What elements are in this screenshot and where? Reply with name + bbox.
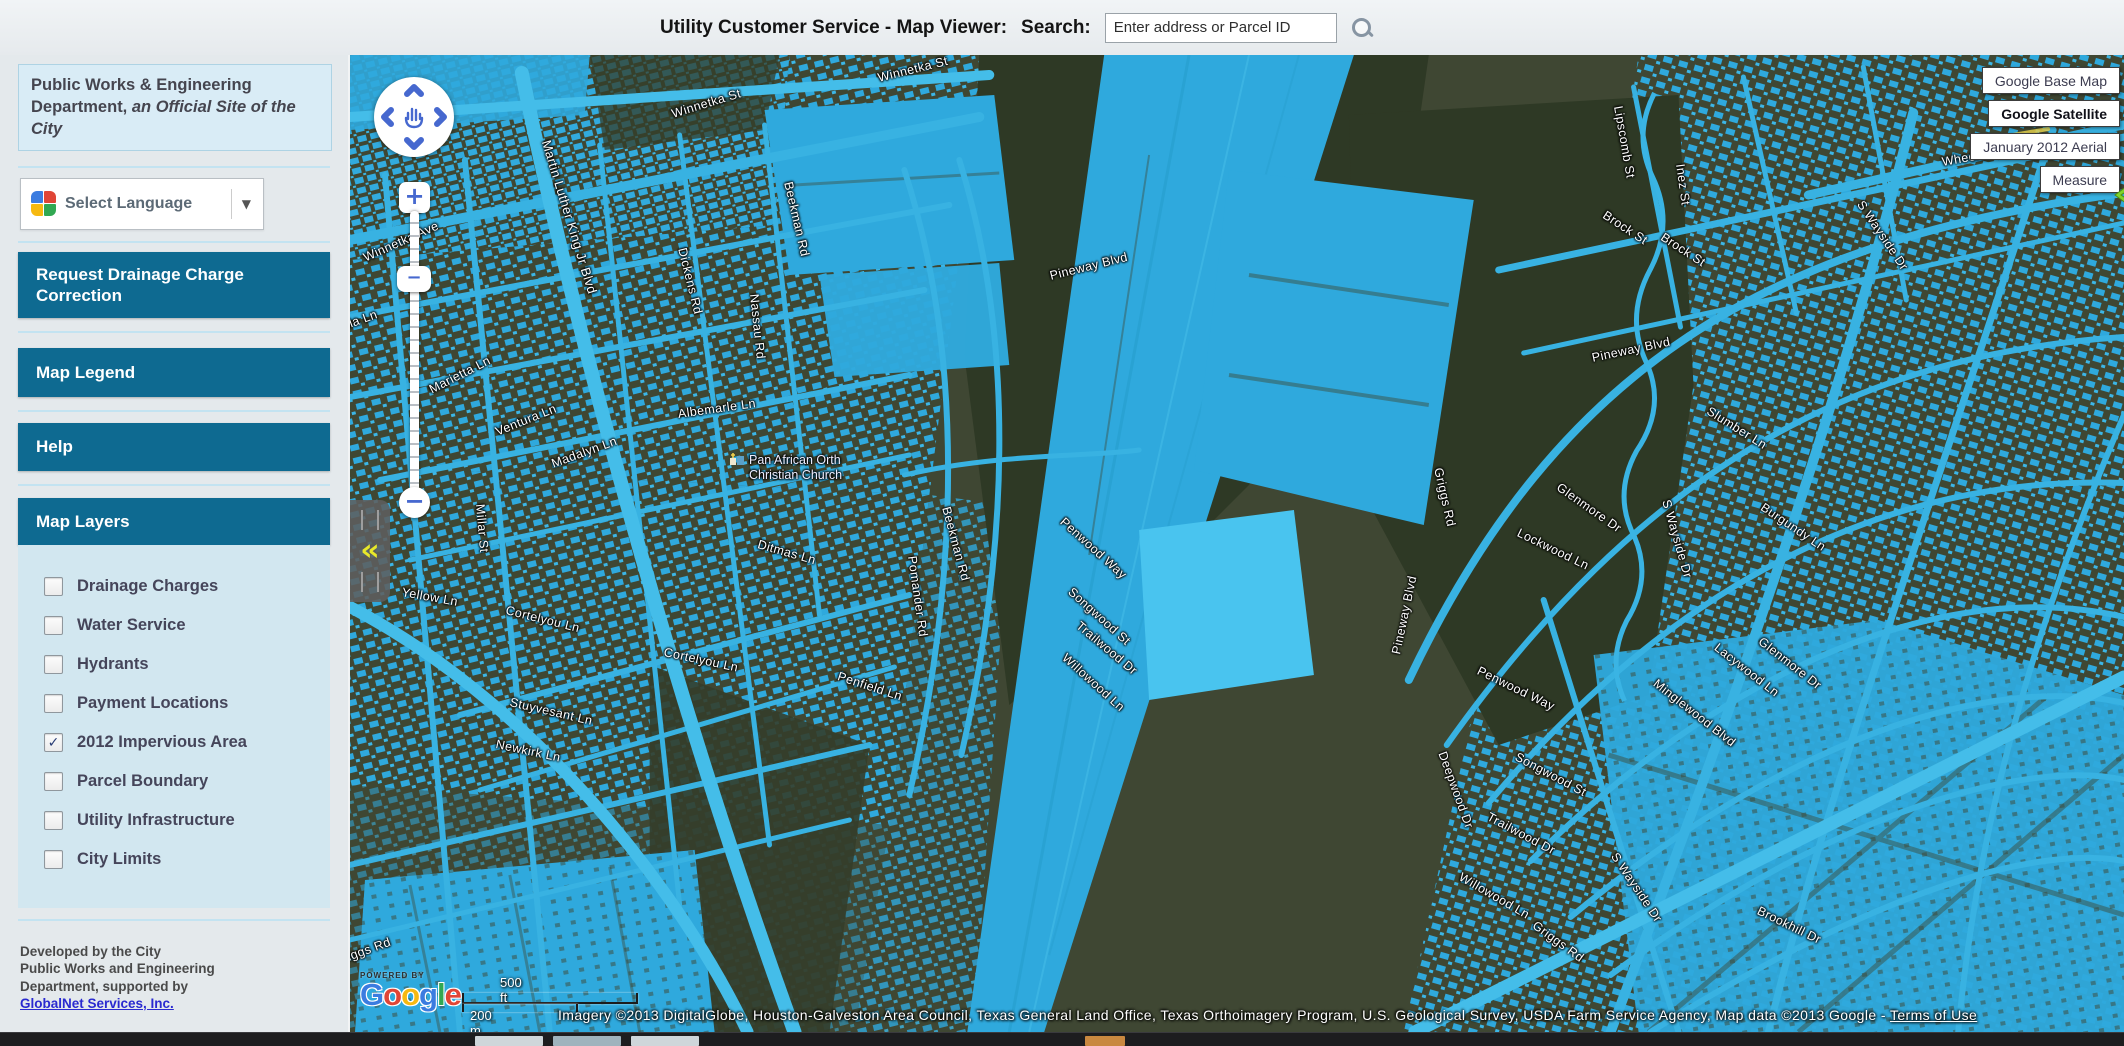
pan-right-icon: [437, 110, 444, 124]
pan-control[interactable]: [374, 77, 454, 157]
pan-down-icon: [407, 140, 421, 147]
zoom-slider-handle[interactable]: −: [397, 266, 431, 292]
taskbar-tile: [1085, 1036, 1125, 1046]
help-button[interactable]: Help: [18, 423, 330, 471]
pan-up-icon: [407, 87, 421, 94]
select-language-dropdown[interactable]: Select Language ▼: [20, 178, 264, 230]
google-translate-icon: [31, 191, 57, 217]
divider: [18, 331, 330, 333]
sidebar-collapse-tab[interactable]: «: [350, 500, 390, 602]
layer-checkbox[interactable]: [44, 655, 63, 674]
search-label: Search:: [1021, 17, 1091, 39]
layer-label: Hydrants: [77, 655, 149, 674]
sidebar: Public Works & Engineering Department, a…: [0, 55, 348, 1032]
google-logo[interactable]: POWERED BY Google: [360, 971, 461, 1010]
zoom-out-button[interactable]: −: [399, 487, 430, 518]
layer-checkbox[interactable]: [44, 577, 63, 596]
collapse-left-icon: «: [360, 538, 379, 564]
layer-checkbox[interactable]: [44, 616, 63, 635]
bottom-window-strip: [0, 1032, 2124, 1046]
scale-m-label: 200 m: [470, 1008, 492, 1032]
map-layers-panel: Drainage ChargesWater ServiceHydrantsPay…: [18, 545, 330, 908]
divider: [18, 484, 330, 486]
attribution-text: Imagery ©2013 DigitalGlobe, Houston-Galv…: [558, 1007, 1890, 1023]
footer-line: Public Works and Engineering: [20, 960, 215, 977]
taskbar-tile: [631, 1036, 699, 1046]
layer-row-hydrants[interactable]: Hydrants: [18, 645, 330, 684]
layer-label: Utility Infrastructure: [77, 811, 235, 830]
layer-row-water-service[interactable]: Water Service: [18, 606, 330, 645]
layer-checkbox[interactable]: [44, 850, 63, 869]
layer-checkbox[interactable]: [44, 811, 63, 830]
map-attribution: Imagery ©2013 DigitalGlobe, Houston-Galv…: [558, 1007, 1977, 1023]
layer-label: Payment Locations: [77, 694, 228, 713]
layer-row-payment-locations[interactable]: Payment Locations: [18, 684, 330, 723]
layer-label: 2012 Impervious Area: [77, 733, 247, 752]
page-title: Utility Customer Service - Map Viewer:: [660, 17, 1007, 39]
map-type-button-google-satellite[interactable]: Google Satellite: [1988, 100, 2120, 127]
layer-label: Water Service: [77, 616, 186, 635]
satellite-map-canvas[interactable]: [350, 55, 2124, 1032]
divider: [18, 919, 330, 921]
globalnet-link[interactable]: GlobalNet Services, Inc.: [20, 996, 174, 1011]
map-type-buttons: Google Base MapGoogle SatelliteJanuary 2…: [1970, 67, 2120, 193]
sidebar-footer: Developed by the City Public Works and E…: [20, 943, 215, 1012]
grip-icon: [361, 510, 379, 530]
footer-line: Department, supported by: [20, 978, 215, 995]
map-layers-header[interactable]: Map Layers: [18, 498, 330, 545]
divider: [18, 410, 330, 412]
scale-bar-ft: [462, 993, 638, 1004]
layer-checkbox[interactable]: [44, 694, 63, 713]
divider: [18, 241, 330, 243]
zoom-in-button[interactable]: +: [399, 182, 430, 213]
chevron-down-icon: ▼: [242, 197, 251, 211]
layer-checkbox[interactable]: [44, 772, 63, 791]
terms-of-use-link[interactable]: Terms of Use: [1890, 1007, 1977, 1023]
search-icon[interactable]: [1351, 17, 1373, 39]
layer-label: Drainage Charges: [77, 577, 218, 596]
divider: [18, 166, 330, 168]
map-type-button-google-base-map[interactable]: Google Base Map: [1982, 67, 2120, 94]
google-wordmark: Google: [360, 980, 461, 1010]
header-bar: Utility Customer Service - Map Viewer: S…: [0, 0, 2124, 56]
layer-row-2012-impervious-area[interactable]: ✓2012 Impervious Area: [18, 723, 330, 762]
taskbar-tile: [475, 1036, 543, 1046]
pan-left-icon: [384, 110, 391, 124]
hand-icon: [406, 109, 422, 127]
map-type-button-january-2012-aerial[interactable]: January 2012 Aerial: [1970, 133, 2120, 160]
map-viewport[interactable]: Pan African Orth Christian Church Winnet…: [348, 55, 2124, 1032]
map-type-button-measure[interactable]: Measure: [2040, 166, 2120, 193]
request-drainage-correction-button[interactable]: Request Drainage Charge Correction: [18, 252, 330, 318]
layer-row-city-limits[interactable]: City Limits: [18, 840, 330, 879]
green-arrow-marker[interactable]: [2111, 183, 2124, 207]
taskbar-tile: [553, 1036, 621, 1046]
footer-line: Developed by the City: [20, 943, 215, 960]
layer-row-drainage-charges[interactable]: Drainage Charges: [18, 567, 330, 606]
select-language-label: Select Language: [65, 195, 231, 213]
layer-checkbox[interactable]: ✓: [44, 733, 63, 752]
layer-label: Parcel Boundary: [77, 772, 208, 791]
layer-row-utility-infrastructure[interactable]: Utility Infrastructure: [18, 801, 330, 840]
grip-icon: [361, 572, 379, 592]
map-legend-button[interactable]: Map Legend: [18, 348, 330, 397]
app-window: Utility Customer Service - Map Viewer: S…: [0, 0, 2124, 1046]
search-input[interactable]: [1105, 13, 1337, 43]
layer-row-parcel-boundary[interactable]: Parcel Boundary: [18, 762, 330, 801]
divider: [231, 189, 232, 219]
layer-label: City Limits: [77, 850, 161, 869]
department-info-box: Public Works & Engineering Department, a…: [18, 64, 332, 151]
zoom-slider-track[interactable]: [410, 211, 419, 493]
